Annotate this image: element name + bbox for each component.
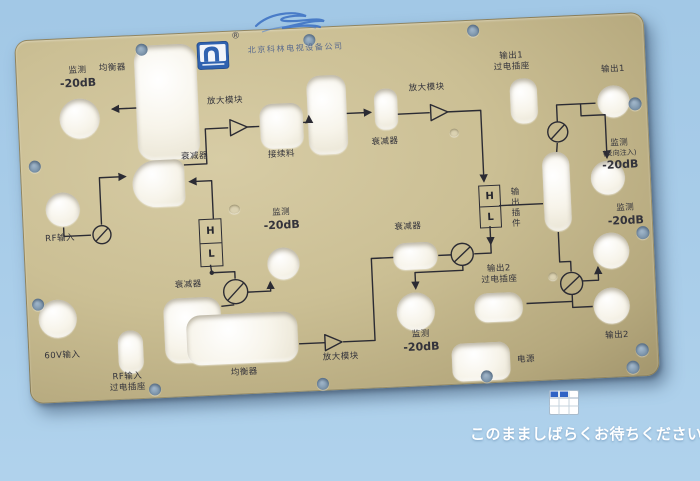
label-output1: 输出1 — [585, 63, 641, 77]
h-filter-label: H — [199, 219, 221, 243]
hole-monitor-tl — [59, 98, 101, 140]
label-monitor-center: 监测 -20dB — [251, 206, 312, 234]
wait-message: このまましばらくお待ちください。 — [470, 423, 700, 444]
label-monitor-reverse: 监测 (反向注入) -20dB — [590, 137, 650, 174]
hole-output2 — [593, 287, 631, 325]
hole-rf-input — [45, 192, 81, 228]
screw-hole — [29, 160, 42, 173]
hole-output2-socket — [474, 292, 523, 323]
table-grid-icon — [549, 390, 579, 415]
label-rf-input: RF输入 — [30, 232, 90, 246]
label-attenuator-4: 衰减器 — [160, 279, 216, 293]
company-name: 北京科林电视设备公司 — [248, 41, 344, 56]
label-attenuator-2: 衰减器 — [352, 135, 418, 149]
label-attenuator-top: 衰减器 — [166, 150, 222, 164]
hole-top-center-slot — [306, 75, 349, 156]
label-monitor-right: 监测 -20dB — [599, 202, 652, 230]
h-filter-label: H — [479, 186, 500, 208]
rivet-hole — [229, 204, 240, 213]
label-amp-module-2: 放大模块 — [391, 81, 461, 95]
label-output2-socket: 输出2 过电插座 — [466, 262, 533, 287]
label-amp-module-top: 放大模块 — [190, 94, 260, 108]
kelin-logo-icon — [196, 41, 229, 70]
hl-filter-box-right: H L — [478, 185, 502, 229]
screw-hole — [481, 370, 494, 383]
screw-hole — [635, 343, 649, 357]
hole-splice-block — [259, 102, 304, 149]
rivet-hole — [450, 128, 459, 136]
label-rf-socket: RF输入 过电插座 — [94, 370, 161, 395]
hole-monitor-low — [396, 292, 436, 332]
photo-viewer-page: H L H L ® 北京科林电视设备公司 监测 -20dB 均衡器 衰减器 放大… — [0, 0, 700, 481]
label-equalizer-top: 均衡器 — [82, 62, 142, 76]
hole-monitor-right — [592, 232, 630, 270]
registered-mark: ® — [231, 31, 240, 41]
label-equalizer-low: 均衡器 — [216, 366, 272, 380]
label-monitor-low: 监测 -20dB — [391, 328, 452, 356]
l-filter-label: L — [480, 207, 501, 228]
screw-hole — [626, 360, 640, 374]
label-power: 电源 — [504, 354, 548, 367]
hl-filter-box-left: H L — [198, 218, 223, 267]
hole-equalizer-low-b — [186, 311, 299, 366]
l-filter-label: L — [200, 243, 222, 266]
label-attenuator-3: 衰减器 — [380, 221, 436, 235]
label-60v-input: 60V输入 — [29, 349, 95, 363]
hole-attenuator-mid — [393, 242, 438, 271]
label-splice-block: 接续料 — [248, 148, 314, 162]
label-amp-module-3: 放大模块 — [306, 350, 376, 364]
label-output-plugin: 输出插件 — [509, 177, 520, 239]
pen-scribble-icon — [252, 8, 330, 38]
label-output1-socket: 输出1 过电插座 — [478, 49, 545, 74]
screw-hole — [628, 97, 642, 111]
screw-hole — [467, 24, 480, 37]
screw-hole — [636, 226, 650, 240]
hole-output1 — [597, 85, 630, 118]
screw-hole — [317, 378, 330, 391]
hole-attenuator-d — [132, 159, 186, 208]
rivet-hole — [548, 272, 557, 280]
hole-output-plugin — [542, 151, 573, 231]
label-output2: 输出2 — [589, 329, 645, 343]
equipment-panel-photo: H L H L ® 北京科林电视设备公司 监测 -20dB 均衡器 衰减器 放大… — [14, 12, 660, 404]
hole-output1-socket — [509, 78, 538, 124]
hole-monitor-center — [267, 247, 300, 280]
hole-rf-socket — [117, 330, 144, 374]
